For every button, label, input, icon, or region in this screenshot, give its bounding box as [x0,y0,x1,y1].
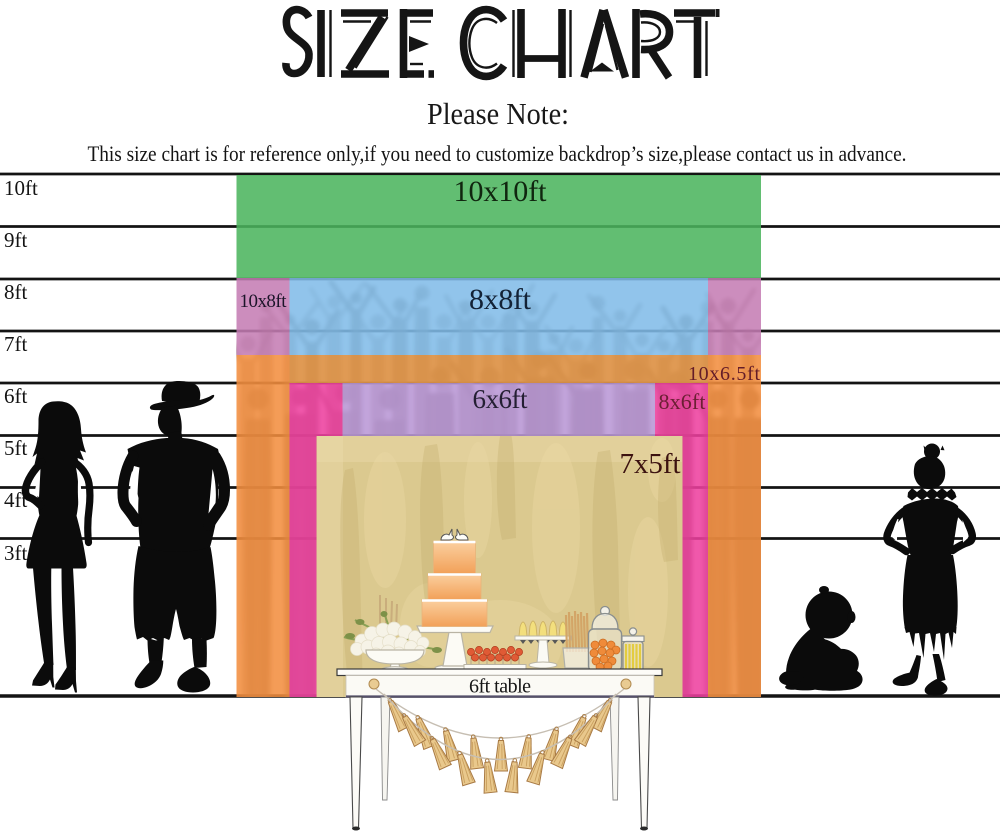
svg-text:5ft: 5ft [4,436,27,460]
svg-text:7x5ft: 7x5ft [620,448,681,480]
svg-text:Please Note:: Please Note: [427,96,569,131]
svg-text:9ft: 9ft [4,228,27,252]
svg-text:8x8ft: 8x8ft [469,283,532,316]
svg-text:8x6ft: 8x6ft [659,389,706,414]
svg-text:8ft: 8ft [4,280,27,304]
svg-text:7ft: 7ft [4,332,27,356]
svg-text:10x8ft: 10x8ft [240,291,288,312]
svg-text:6ft: 6ft [4,384,27,408]
svg-text:This size chart is for referen: This size chart is for reference only,if… [88,141,907,166]
svg-text:3ft: 3ft [4,541,27,565]
svg-text:6x6ft: 6x6ft [473,384,528,414]
svg-text:10x6.5ft: 10x6.5ft [688,363,760,385]
svg-text:10x10ft: 10x10ft [454,175,548,208]
svg-text:10ft: 10ft [4,176,38,200]
svg-text:6ft table: 6ft table [469,676,531,698]
